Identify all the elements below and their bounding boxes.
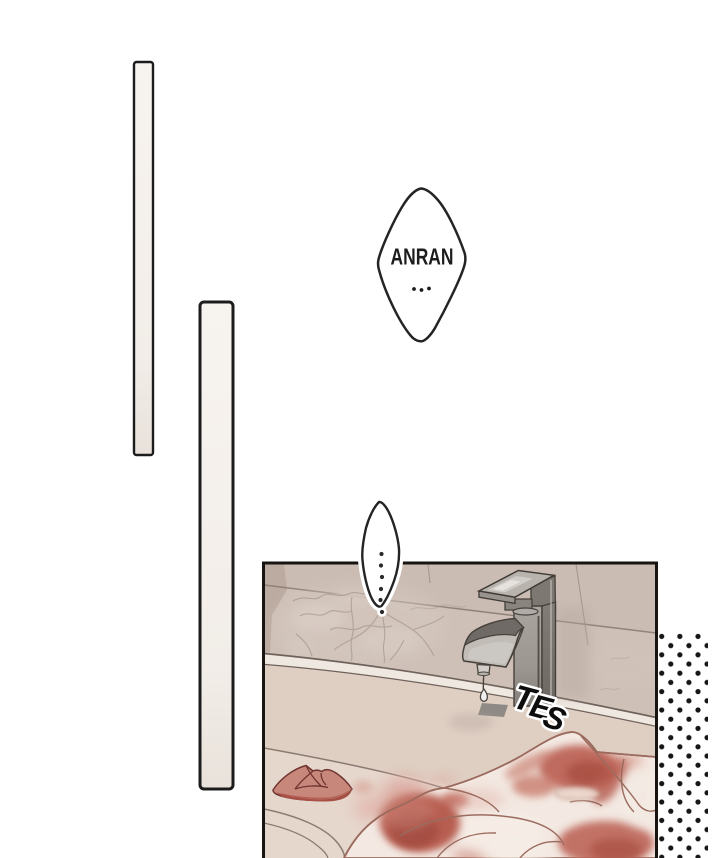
svg-text:ANRAN: ANRAN [391,244,454,270]
